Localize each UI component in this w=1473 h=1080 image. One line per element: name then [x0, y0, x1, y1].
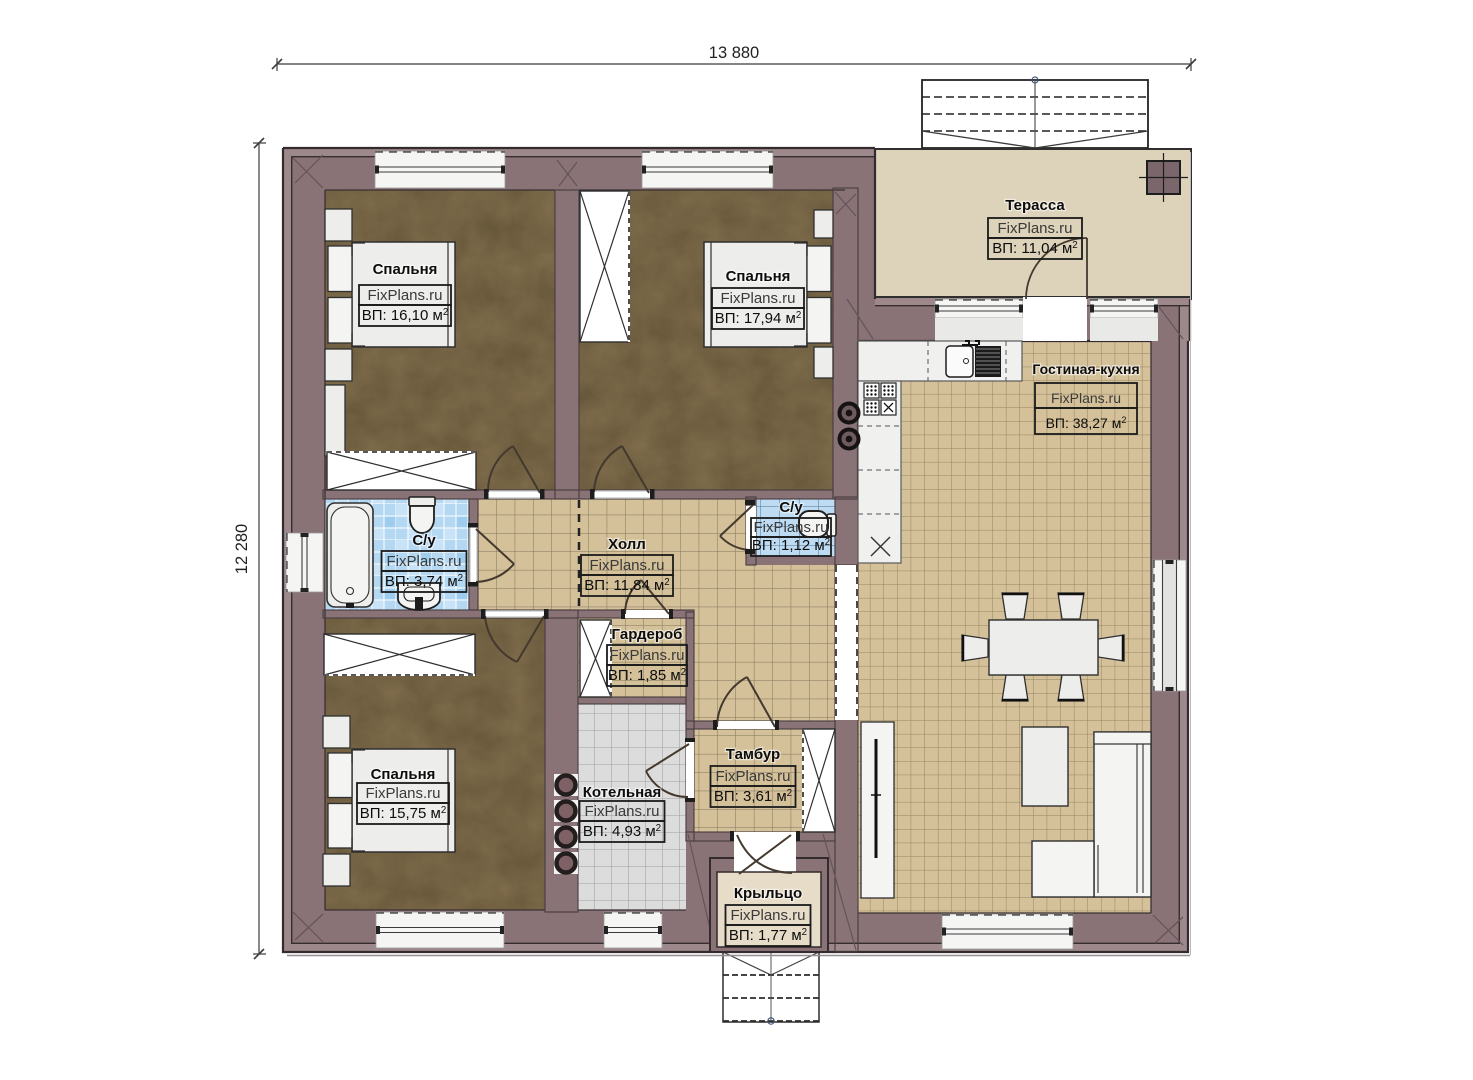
svg-text:Спальня: Спальня	[726, 268, 791, 285]
svg-text:Тамбур: Тамбур	[726, 746, 780, 763]
svg-text:ВП: 4,93 м2: ВП: 4,93 м2	[583, 823, 661, 840]
svg-text:ВП: 15,75 м2: ВП: 15,75 м2	[360, 805, 447, 822]
svg-text:FixPlans.ru: FixPlans.ru	[720, 290, 795, 307]
svg-text:FixPlans.ru: FixPlans.ru	[753, 519, 828, 536]
svg-text:ВП: 3,74 м2: ВП: 3,74 м2	[385, 573, 463, 590]
svg-text:FixPlans.ru: FixPlans.ru	[715, 768, 790, 785]
svg-text:FixPlans.ru: FixPlans.ru	[386, 553, 461, 570]
svg-text:FixPlans.ru: FixPlans.ru	[365, 785, 440, 802]
svg-text:ВП: 17,94 м2: ВП: 17,94 м2	[715, 310, 802, 327]
svg-text:ВП: 11,04 м2: ВП: 11,04 м2	[992, 240, 1077, 257]
svg-text:12 280: 12 280	[233, 524, 251, 574]
svg-text:FixPlans.ru: FixPlans.ru	[367, 287, 442, 304]
svg-text:Холл: Холл	[608, 536, 646, 553]
svg-text:Спальня: Спальня	[373, 261, 438, 278]
svg-text:13 880: 13 880	[709, 44, 759, 62]
svg-text:Гардероб: Гардероб	[612, 626, 683, 643]
svg-text:FixPlans.ru: FixPlans.ru	[589, 557, 664, 574]
svg-text:ВП: 38,27 м2: ВП: 38,27 м2	[1046, 415, 1127, 431]
svg-text:FixPlans.ru: FixPlans.ru	[1051, 390, 1121, 406]
svg-text:С/у: С/у	[412, 532, 436, 549]
svg-text:Гостиная-кухня: Гостиная-кухня	[1032, 361, 1139, 377]
svg-text:FixPlans.ru: FixPlans.ru	[609, 647, 684, 664]
svg-text:FixPlans.ru: FixPlans.ru	[730, 907, 805, 924]
svg-text:ВП: 1,77 м2: ВП: 1,77 м2	[729, 927, 807, 944]
svg-text:С/у: С/у	[779, 499, 803, 516]
svg-text:FixPlans.ru: FixPlans.ru	[997, 220, 1072, 237]
svg-text:ВП: 1,12 м2: ВП: 1,12 м2	[752, 537, 830, 554]
svg-text:FixPlans.ru: FixPlans.ru	[584, 803, 659, 820]
svg-text:Котельная: Котельная	[583, 784, 662, 801]
svg-text:Терасса: Терасса	[1005, 197, 1065, 214]
svg-text:Спальня: Спальня	[371, 766, 436, 783]
svg-text:Крыльцо: Крыльцо	[734, 885, 802, 902]
svg-text:ВП: 16,10 м2: ВП: 16,10 м2	[362, 307, 449, 324]
svg-text:ВП: 11,84 м2: ВП: 11,84 м2	[584, 577, 669, 594]
svg-text:ВП: 1,85 м2: ВП: 1,85 м2	[608, 667, 686, 684]
svg-text:ВП: 3,61 м2: ВП: 3,61 м2	[714, 788, 792, 805]
